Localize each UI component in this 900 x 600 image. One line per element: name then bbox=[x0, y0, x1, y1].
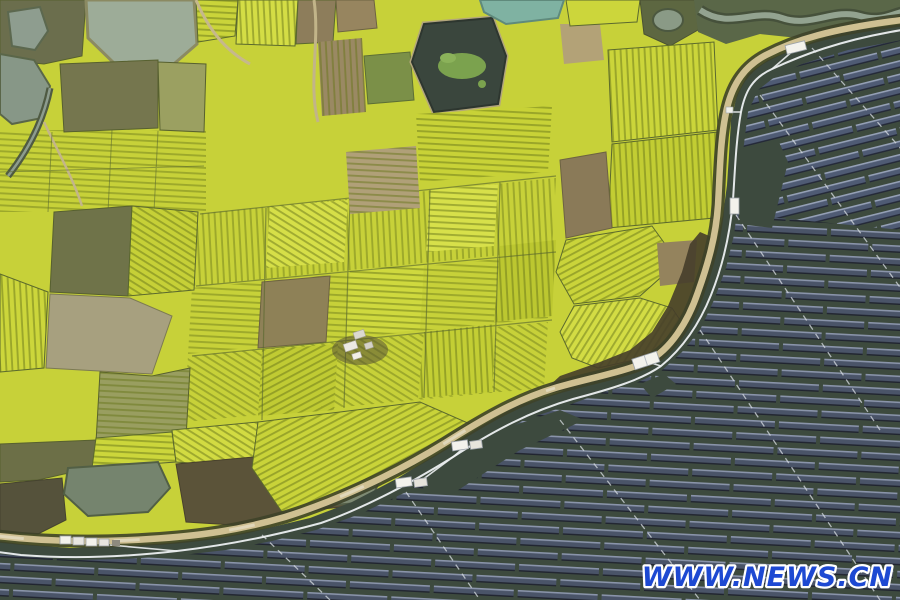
aerial-photo: WWW.NEWS.CN bbox=[0, 0, 900, 600]
field-patch bbox=[60, 60, 158, 132]
field-patch bbox=[258, 276, 330, 348]
building-shadow bbox=[332, 335, 388, 365]
service-platform bbox=[730, 198, 739, 214]
roadside-shed bbox=[86, 538, 97, 546]
stripe-overlay bbox=[418, 324, 496, 398]
service-platform bbox=[470, 440, 483, 450]
roadside-shed bbox=[99, 539, 109, 546]
stripe-overlay bbox=[266, 200, 348, 268]
stripe-overlay bbox=[258, 344, 338, 416]
field-patch bbox=[158, 62, 206, 132]
pond bbox=[653, 9, 683, 31]
stripe-overlay bbox=[346, 146, 420, 214]
field-patch bbox=[560, 24, 604, 64]
pond-vegetation bbox=[440, 53, 456, 63]
watermark-text: WWW.NEWS.CN bbox=[642, 562, 893, 593]
field-patch bbox=[566, 0, 640, 26]
field-patch bbox=[50, 206, 132, 296]
stripe-overlay bbox=[346, 264, 424, 336]
field-patch bbox=[336, 0, 377, 32]
field-patch bbox=[364, 52, 414, 104]
service-platform bbox=[414, 478, 428, 488]
roadside-shed bbox=[112, 540, 120, 546]
roadside-shed bbox=[60, 536, 71, 544]
stripe-overlay bbox=[318, 38, 366, 116]
service-platform bbox=[395, 477, 412, 488]
field-patch bbox=[560, 152, 612, 238]
photo-scene: WWW.NEWS.CN bbox=[0, 0, 900, 600]
service-platform bbox=[726, 107, 733, 113]
stripe-overlay bbox=[128, 206, 198, 296]
roadside-shed bbox=[73, 537, 84, 545]
service-platform bbox=[451, 440, 468, 451]
stripe-overlay bbox=[608, 132, 718, 228]
pond-vegetation bbox=[478, 80, 486, 88]
stripe-overlay bbox=[416, 106, 552, 182]
stripe-overlay bbox=[426, 184, 498, 252]
stripe-overlay bbox=[236, 0, 298, 46]
stripe-overlay bbox=[608, 42, 718, 142]
